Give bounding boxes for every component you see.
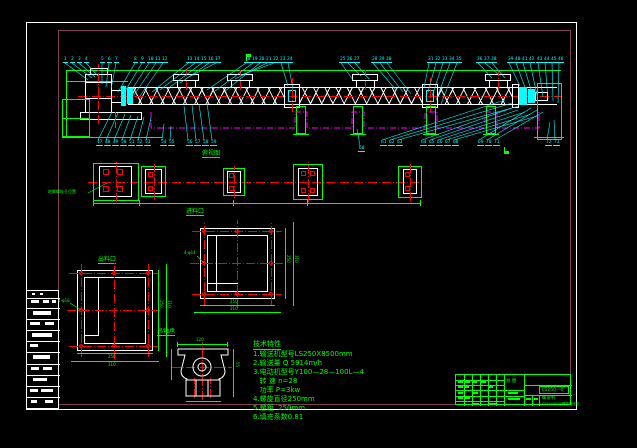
part-number-label: 51 (128, 140, 135, 146)
part-number-label: 53 (144, 140, 151, 146)
drawing-overlay (0, 0, 637, 448)
bearing-bore (193, 358, 211, 376)
part-number-label: 7 (114, 57, 119, 63)
bearing-housing-outline (178, 349, 228, 380)
leader-line (170, 63, 202, 87)
part-number-label: 56 (186, 140, 193, 146)
part-number-label: 63 (396, 140, 403, 146)
part-number-label: 42 (528, 57, 535, 63)
part-number-label: 60 (358, 146, 365, 152)
leader-line (545, 63, 548, 99)
part-number-label: 66 (436, 140, 443, 146)
bearing-shaft (198, 363, 206, 371)
leader-line (441, 63, 457, 104)
leader-line (390, 103, 512, 140)
leader-line (424, 63, 429, 88)
part-number-label: 6 (107, 57, 112, 63)
leader-line (547, 122, 550, 140)
leader-line (348, 63, 361, 76)
part-number-label: 72 (545, 140, 552, 146)
leader-line (130, 116, 138, 140)
leader-line (88, 183, 107, 193)
leader-line (122, 115, 131, 140)
leader-line (111, 63, 116, 89)
leader-line (281, 63, 288, 86)
part-number-label: 67 (444, 140, 451, 146)
part-number-label: 1 (63, 57, 68, 63)
part-number-label: 68 (452, 140, 459, 146)
part-number-label: 58 (202, 140, 209, 146)
leader-line (509, 63, 520, 86)
leader-line (106, 113, 118, 140)
part-number-label: 71 (493, 140, 500, 146)
part-number-label: 69 (477, 140, 484, 146)
leader-line (523, 63, 532, 93)
part-number-label: 62 (388, 140, 395, 146)
part-number-label: 59 (210, 140, 217, 146)
part-number-label: 27 (353, 57, 360, 63)
leader-line (98, 112, 112, 140)
part-number-label: 70 (485, 140, 492, 146)
part-number-label: 46 (557, 57, 564, 63)
leader-line (70, 303, 81, 310)
part-number-label: 8 (133, 57, 138, 63)
part-number-label: 47 (96, 140, 103, 146)
leader-line (380, 63, 403, 92)
leader-line (538, 63, 543, 97)
part-number-label: 50 (120, 140, 127, 146)
part-number-label: 49 (112, 140, 119, 146)
leader-line (184, 106, 188, 140)
part-number-label: 24 (286, 57, 293, 63)
leader-line (146, 118, 151, 140)
part-number-label: 52 (136, 140, 143, 146)
part-number-label: 57 (194, 140, 201, 146)
leader-line (341, 63, 353, 80)
part-number-label: 61 (380, 140, 387, 146)
part-number-label: 2 (70, 57, 75, 63)
part-number-label: 38 (490, 57, 497, 63)
leader-line (373, 63, 396, 90)
leader-line (355, 63, 369, 79)
part-number-label: 17 (214, 57, 221, 63)
leader-line (134, 63, 156, 95)
leader-line (554, 120, 555, 140)
leader-line (162, 124, 164, 140)
leader-line (138, 117, 144, 140)
part-number-label: 30 (385, 57, 392, 63)
leader-line (199, 104, 204, 140)
leader-line (106, 63, 109, 87)
part-number-label: 5 (100, 57, 105, 63)
part-number-label: 9 (140, 57, 145, 63)
leader-line (197, 256, 204, 263)
leader-line (235, 63, 267, 79)
leader-line (478, 63, 492, 78)
part-number-label: 12 (161, 57, 168, 63)
leader-line (552, 63, 553, 101)
leader-line (558, 63, 559, 103)
part-number-label: 48 (104, 140, 111, 146)
leader-line (387, 63, 411, 94)
part-number-label: 3 (77, 57, 82, 63)
leader-line (207, 103, 212, 140)
leader-line (382, 100, 505, 140)
part-number-label: 64 (420, 140, 427, 146)
leader-line (224, 63, 260, 92)
leader-line (288, 63, 293, 89)
leader-line (192, 105, 196, 140)
leader-line (118, 63, 135, 92)
leader-line (215, 63, 253, 91)
leader-line (438, 112, 525, 140)
part-number-label: 65 (428, 140, 435, 146)
part-number-label: 73 (553, 140, 560, 146)
part-number-label: 54 (160, 140, 167, 146)
leader-line (432, 63, 443, 96)
leader-line (187, 63, 216, 78)
leader-line (357, 129, 360, 146)
part-number-label: 35 (455, 57, 462, 63)
part-number-label: 4 (84, 57, 89, 63)
leader-line (65, 63, 88, 80)
cad-drawing-sheet: 地脚螺栓孔位置 俯视图 进料口 250 310 250 310 4-φ14 (0, 0, 637, 448)
leader-line (140, 63, 163, 96)
bearing-base (186, 380, 220, 396)
part-number-label: 55 (168, 140, 175, 146)
leader-line (436, 63, 450, 100)
